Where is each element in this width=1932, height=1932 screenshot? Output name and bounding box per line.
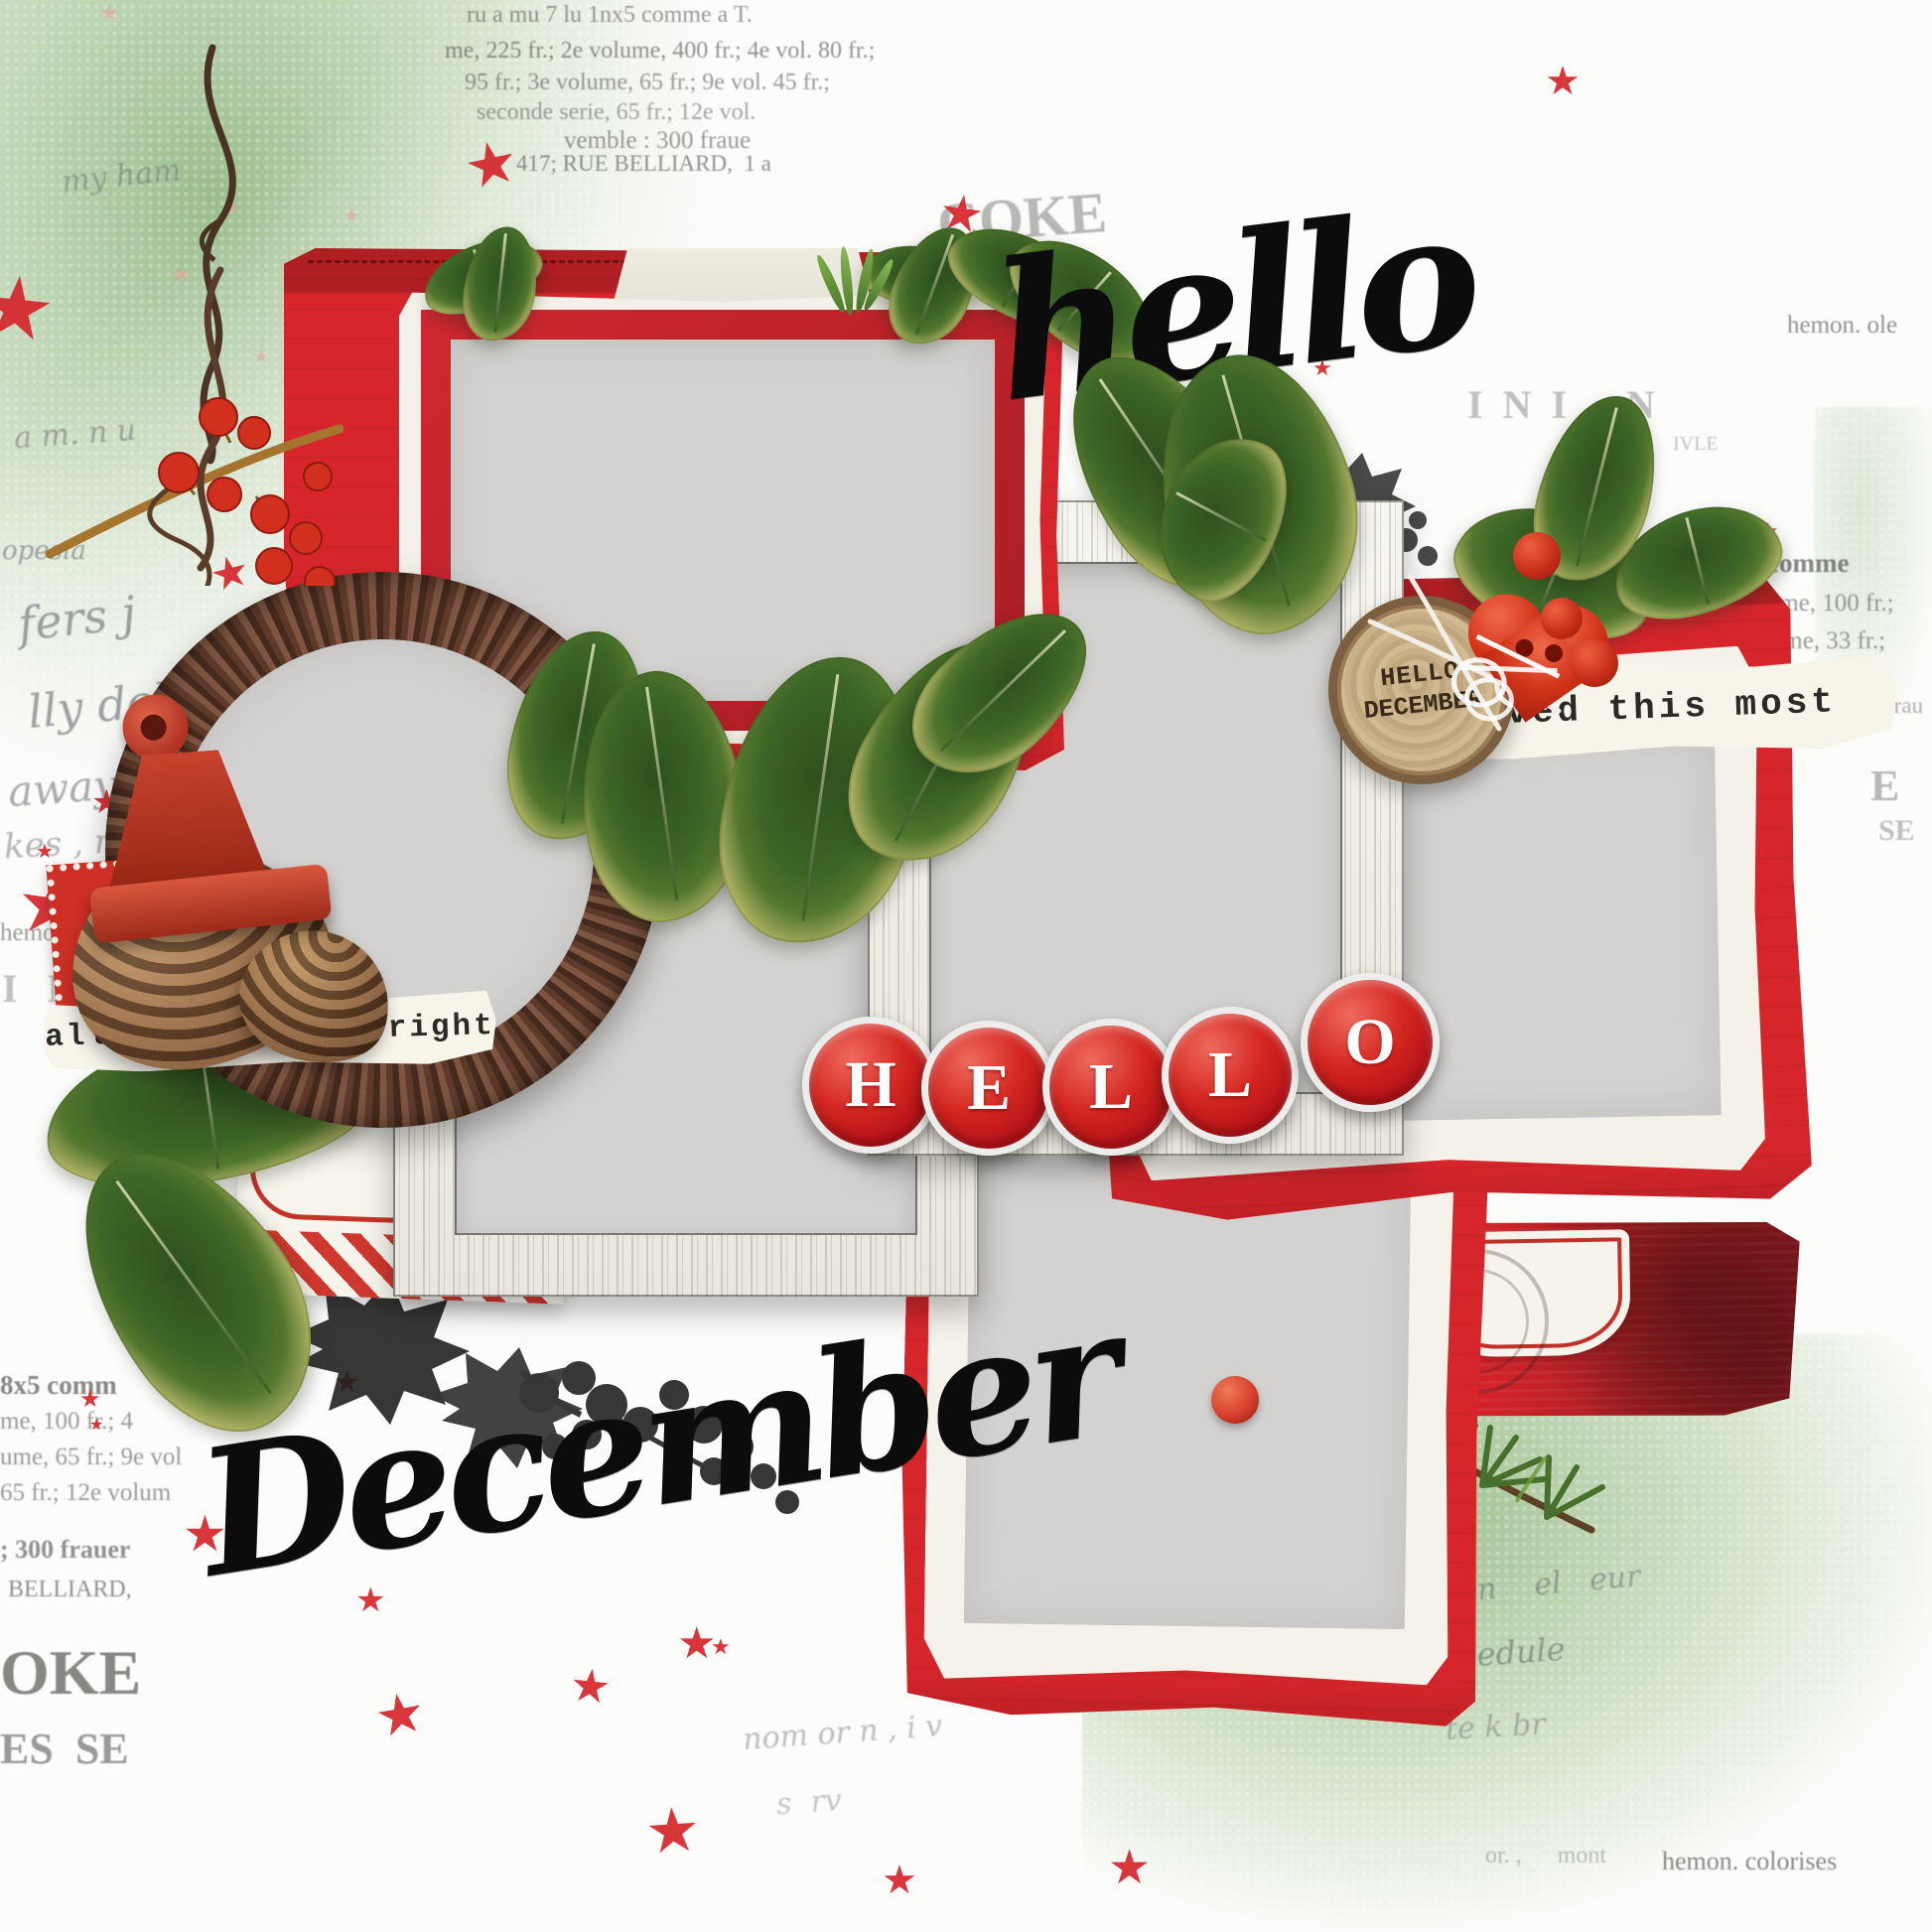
letter-badge-l1: L (1042, 1019, 1179, 1156)
letter-badge-e: E (921, 1021, 1056, 1156)
badge-letter: O (1344, 1005, 1395, 1080)
rosehip-berry (1513, 532, 1561, 580)
berry-branch (20, 248, 357, 586)
badge-letter: E (967, 1050, 1011, 1126)
star-icon: ★ (36, 842, 54, 862)
star-icon: ★ (568, 1662, 614, 1712)
star-icon: ★ (643, 1799, 703, 1864)
rosehip-berry (1541, 598, 1583, 639)
bell-icon (1211, 1376, 1259, 1424)
star-icon: ★ (1545, 62, 1581, 101)
star-icon: ★ (79, 1388, 101, 1412)
badge-letter: L (1208, 1037, 1252, 1113)
star-icon: ★ (459, 130, 523, 200)
grass-sprig (822, 246, 892, 326)
star-icon: ★ (1108, 1845, 1151, 1892)
star-icon: ★ (99, 2, 119, 24)
star-icon: ★ (89, 1418, 103, 1434)
letter-badge-o: O (1301, 973, 1440, 1112)
badge-letter: H (845, 1047, 896, 1123)
binder-clip-icon (76, 683, 345, 1008)
star-icon: ★ (371, 1684, 430, 1747)
rosehip-berry (1571, 639, 1618, 687)
letter-badge-l2: L (1162, 1007, 1299, 1144)
scrapbook-page: ru a mu 7 lu 1nx5 comme a T.me, 225 fr.;… (0, 0, 1932, 1932)
star-icon: ★ (711, 1636, 731, 1658)
badge-letter: L (1089, 1049, 1133, 1125)
letter-badge-h: H (802, 1017, 939, 1154)
star-icon: ★ (882, 1861, 917, 1900)
